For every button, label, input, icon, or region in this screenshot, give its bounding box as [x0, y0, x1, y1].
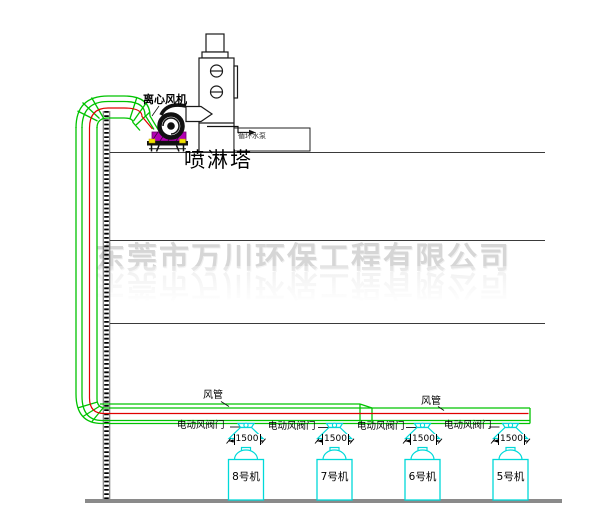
machine-label-5: 5号机: [493, 469, 529, 484]
tank-label: 循环水泵: [238, 133, 266, 141]
wall-column: [103, 111, 110, 499]
tower-side-bracket: [234, 66, 238, 98]
machine-label-7: 7号机: [317, 469, 353, 484]
machine-label-8: 8号机: [228, 469, 264, 484]
duct-centerline: [90, 108, 529, 414]
valve-label-2: 电动风阀门: [268, 422, 316, 432]
duct-riser: [76, 127, 97, 399]
stand-pad-right-icon: [180, 139, 186, 143]
dimension-value-3: 1500: [410, 434, 437, 445]
dimension-value-2: 1500: [322, 434, 349, 445]
fan-label: 离心风机: [143, 94, 187, 106]
machine-label-6: 6号机: [405, 469, 441, 484]
duct-bottom-elbow: [76, 394, 106, 424]
dimension-value-1: 1500: [234, 434, 261, 445]
valve-label-1: 电动风阀门: [177, 421, 225, 431]
cad-drawing-canvas: 东莞市万川环保工程有限公司 东莞市万川环保工程有限公司: [0, 0, 600, 525]
stand-pad-left-icon: [149, 139, 155, 143]
diagram-linework: [0, 0, 600, 525]
tower-label: 喷淋塔: [184, 149, 253, 172]
duct-label-2: 风管: [421, 396, 441, 407]
dimension-value-4: 1500: [498, 434, 525, 445]
stack-collar: [202, 52, 228, 58]
duct-label-1: 风管: [203, 390, 223, 401]
valve-label-4: 电动风阀门: [444, 421, 492, 431]
fan-hub-icon: [167, 122, 175, 130]
floor-lines: [110, 153, 545, 324]
exhaust-stack: [206, 34, 224, 52]
fan-label-leader: [152, 106, 159, 116]
spray-tower: [199, 34, 238, 152]
valve-label-3: 电动风阀门: [357, 422, 405, 432]
